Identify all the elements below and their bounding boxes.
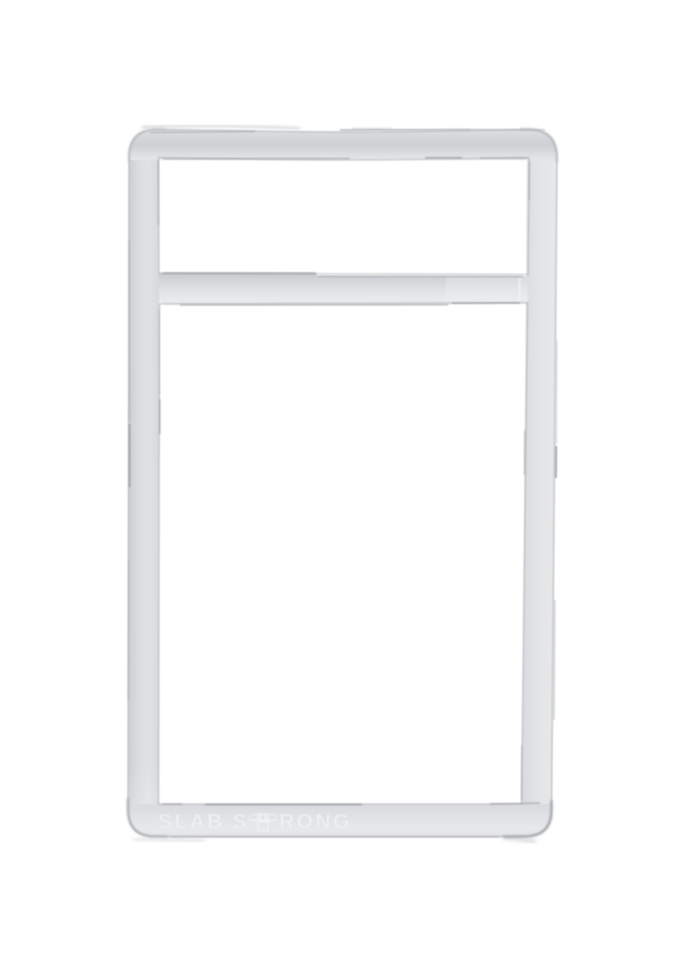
svg-text:RONG: RONG bbox=[279, 810, 352, 834]
svg-text:SLAB S: SLAB S bbox=[158, 810, 249, 834]
